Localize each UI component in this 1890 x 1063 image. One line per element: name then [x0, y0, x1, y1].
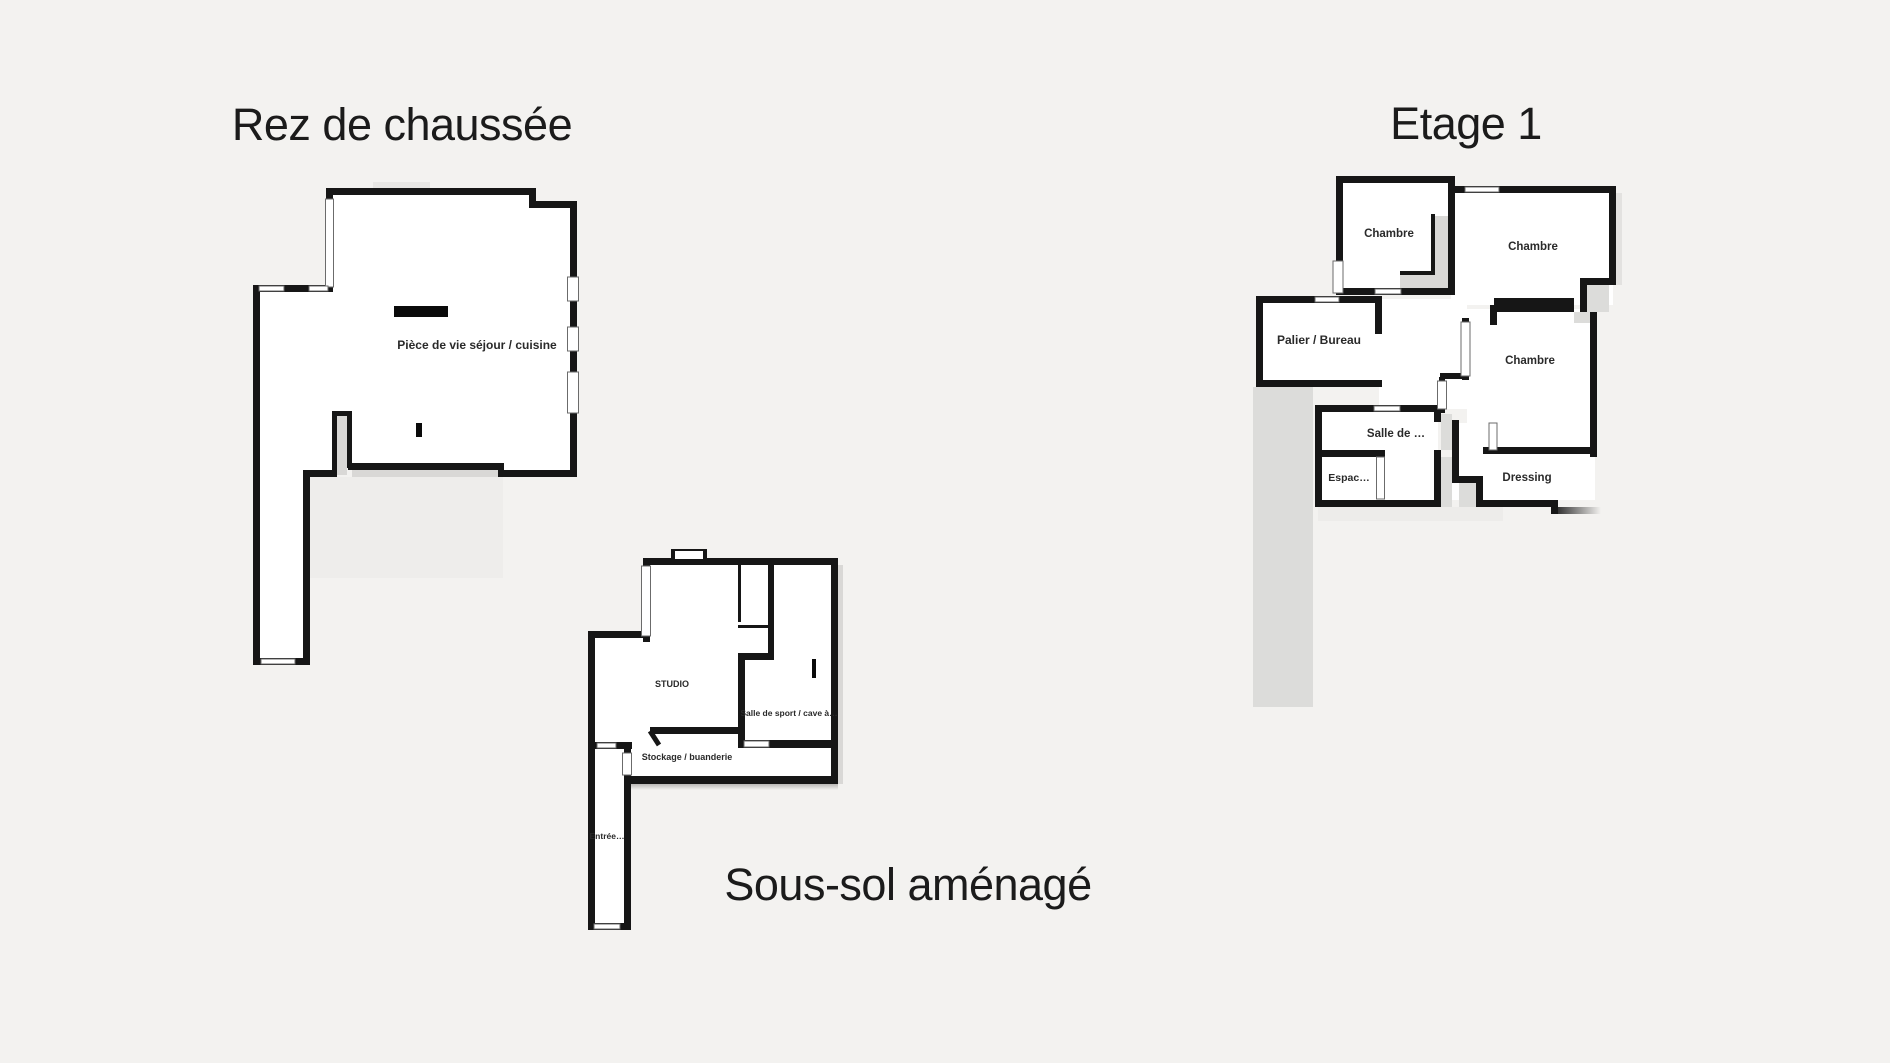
kitchen-counter: [394, 306, 448, 317]
door-stub: [416, 423, 422, 437]
room-label-landing: Palier / Bureau: [1277, 333, 1361, 347]
basement-right-shadow: [838, 565, 843, 784]
first-right-shadow: [1616, 193, 1622, 285]
gym-door-stub: [812, 659, 816, 678]
floor-title-ground: Rez de chaussée: [232, 99, 572, 151]
first-bottom-shadow: [1318, 507, 1503, 521]
floorplan-page: Rez de chaussée Etage 1 Sous-sol aménagé…: [0, 0, 1890, 1063]
floor-title-first: Etage 1: [1390, 98, 1542, 150]
room-label-entry: Entrée…: [590, 831, 625, 841]
first-floor-plan: [1253, 176, 1622, 707]
room-label-bedroom2: Chambre: [1508, 241, 1558, 253]
dressing-fading-wall: [1551, 507, 1601, 514]
room-label-living: Pièce de vie séjour / cuisine: [397, 338, 556, 352]
first-left-shadow-column: [1253, 387, 1313, 707]
hall-floor: [1379, 299, 1467, 409]
ground-wall-shadow: [352, 470, 498, 477]
floor-title-basement: Sous-sol aménagé: [724, 859, 1091, 911]
room-label-bathroom: Salle de …: [1367, 428, 1425, 440]
ground-terrace-shadow: [310, 477, 503, 578]
chimney-channel: [337, 416, 347, 475]
basement-bump-inner: [675, 551, 703, 559]
room-label-studio: STUDIO: [655, 679, 689, 689]
room-label-bedroom3: Chambre: [1505, 355, 1555, 367]
room-label-space: Espac…: [1328, 472, 1369, 484]
room-label-gym: Salle de sport / cave à…: [740, 708, 837, 718]
basement-bottom-shadow: [631, 784, 838, 790]
room-label-storage: Stockage / buanderie: [642, 752, 733, 762]
room-label-bedroom1: Chambre: [1364, 228, 1414, 240]
room-label-dressing: Dressing: [1502, 472, 1551, 484]
ground-floor-plan: [253, 182, 579, 665]
